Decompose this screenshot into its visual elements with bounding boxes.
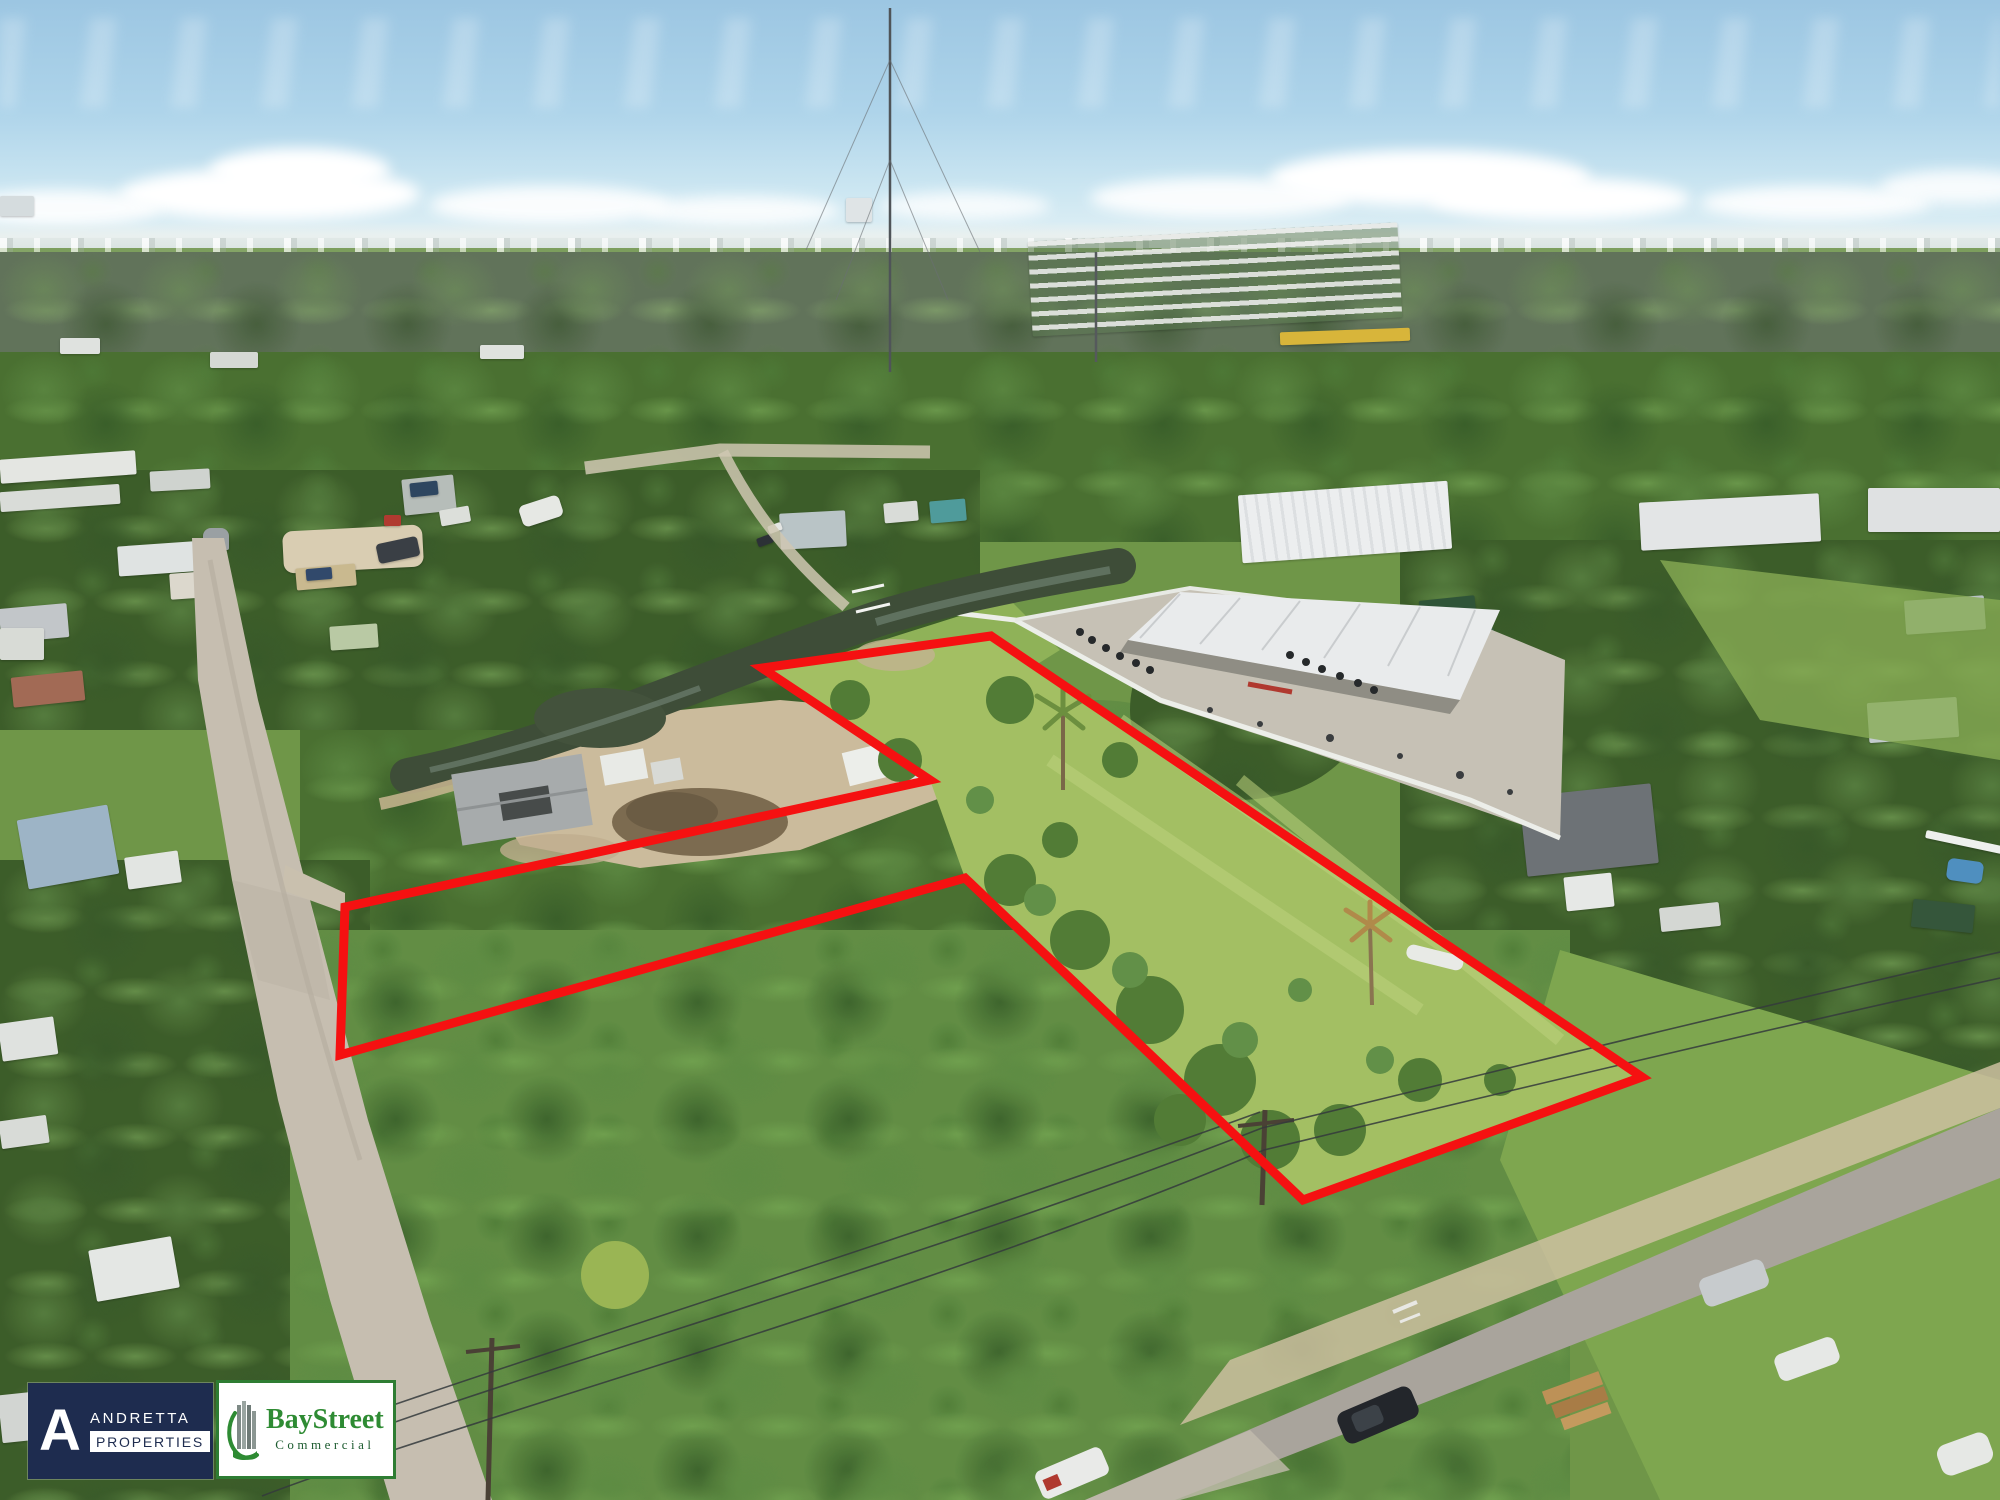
building-icon (227, 1399, 261, 1461)
baystreet-name: BayStreet (266, 1406, 384, 1434)
baystreet-text-block: BayStreet Commercial (266, 1406, 384, 1453)
andretta-text-block: ANDRETTA PROPERTIES (90, 1410, 210, 1452)
boundary-overlay (0, 0, 2000, 1500)
andretta-name: ANDRETTA (90, 1410, 210, 1427)
andretta-division: PROPERTIES (90, 1431, 210, 1452)
baystreet-commercial-logo: BayStreet Commercial (216, 1380, 396, 1479)
aerial-property-photo: A ANDRETTA PROPERTIES BayStreet Commerci… (0, 0, 2000, 1500)
property-boundary-line (340, 636, 1642, 1200)
andretta-properties-logo: A ANDRETTA PROPERTIES (28, 1383, 213, 1479)
andretta-monogram: A (28, 1386, 90, 1476)
baystreet-division: Commercial (266, 1437, 384, 1453)
